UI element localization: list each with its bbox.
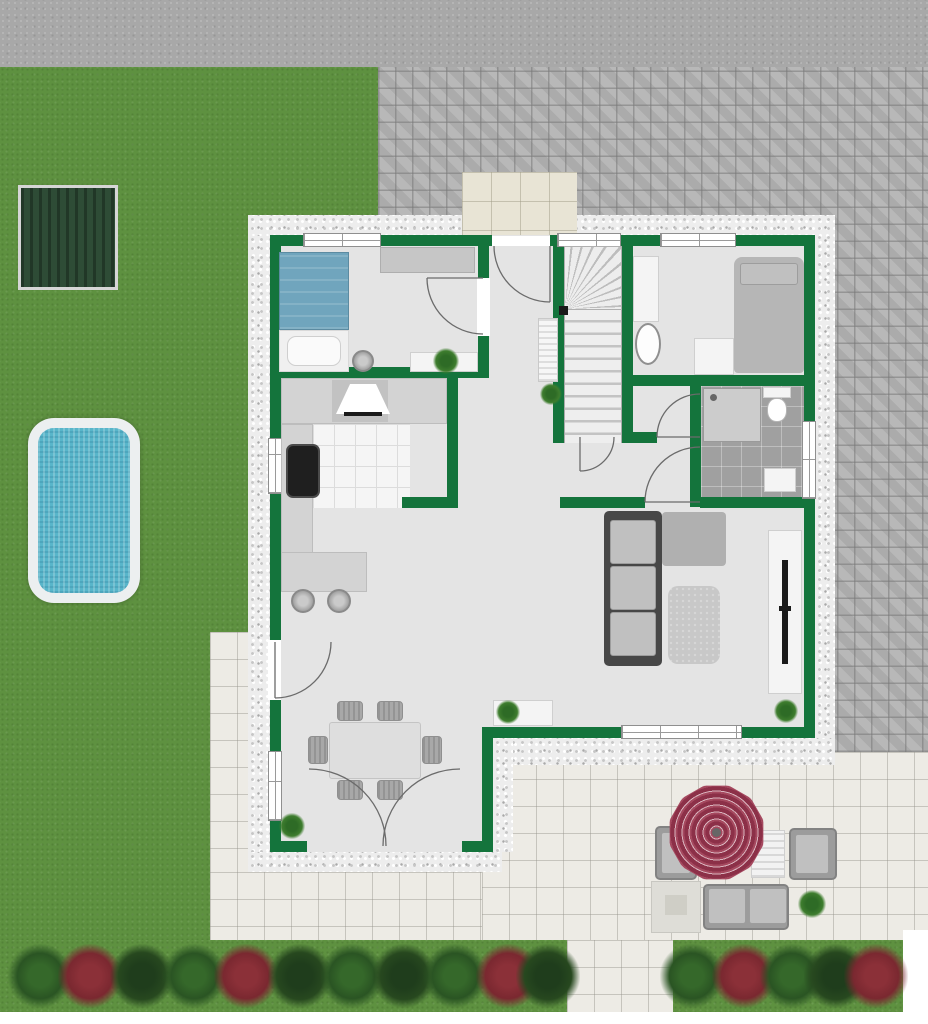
- hall-door[interactable]: [645, 447, 700, 502]
- french-door-left[interactable]: [309, 769, 386, 846]
- front-door[interactable]: [494, 246, 550, 302]
- corridor-door[interactable]: [657, 394, 700, 437]
- dining-side-door[interactable]: [275, 642, 331, 698]
- door-swing-overlay: [0, 0, 928, 1024]
- floor-plan-canvas: [0, 0, 928, 1024]
- stair-hall-door[interactable]: [580, 437, 614, 471]
- french-door-right[interactable]: [383, 769, 460, 846]
- bedroom-door[interactable]: [427, 278, 483, 334]
